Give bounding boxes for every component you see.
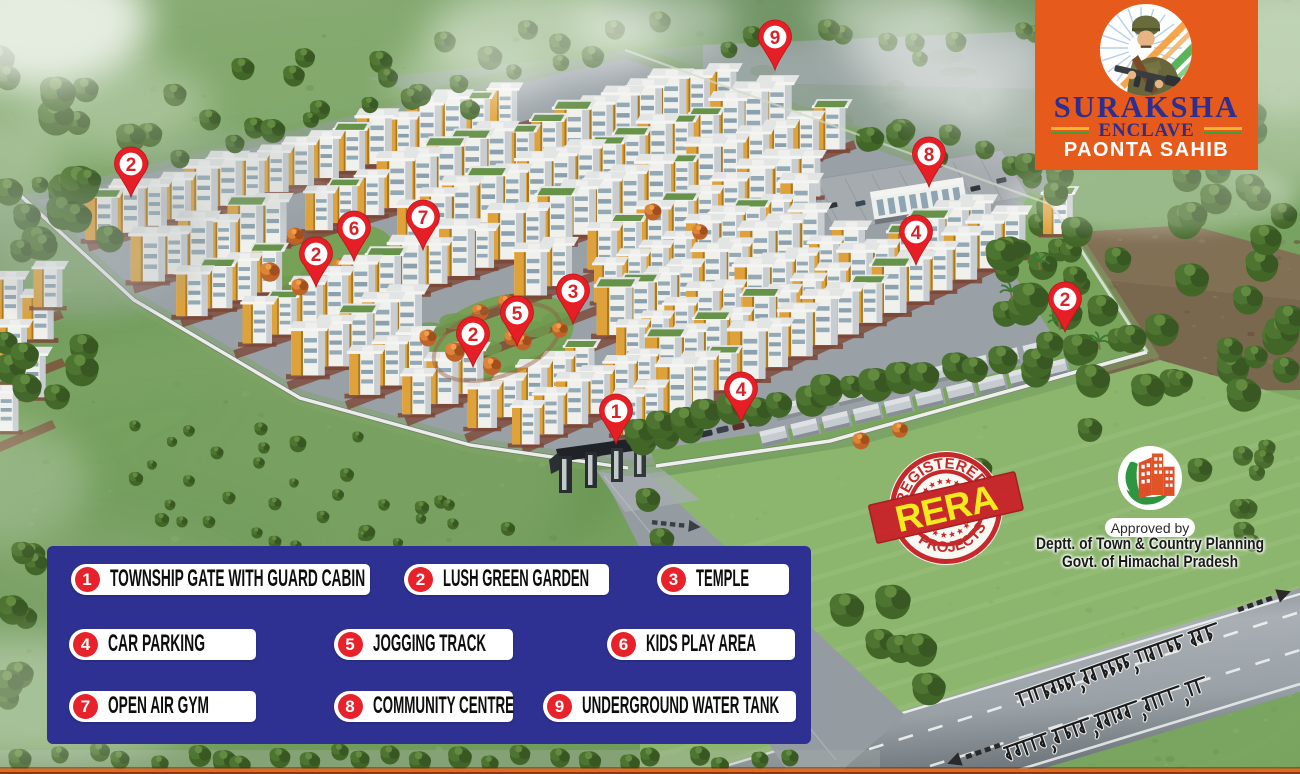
svg-text:9: 9: [770, 28, 781, 49]
svg-text:2: 2: [311, 245, 322, 266]
svg-text:4: 4: [736, 380, 747, 401]
svg-text:2: 2: [468, 325, 479, 346]
svg-text:7: 7: [418, 208, 429, 229]
svg-text:4: 4: [911, 223, 922, 244]
svg-text:8: 8: [924, 145, 935, 166]
svg-text:1: 1: [611, 402, 622, 423]
svg-text:2: 2: [126, 155, 137, 176]
svg-text:2: 2: [1060, 290, 1071, 311]
svg-text:3: 3: [568, 282, 579, 303]
svg-text:5: 5: [512, 304, 523, 325]
svg-text:6: 6: [349, 219, 360, 240]
